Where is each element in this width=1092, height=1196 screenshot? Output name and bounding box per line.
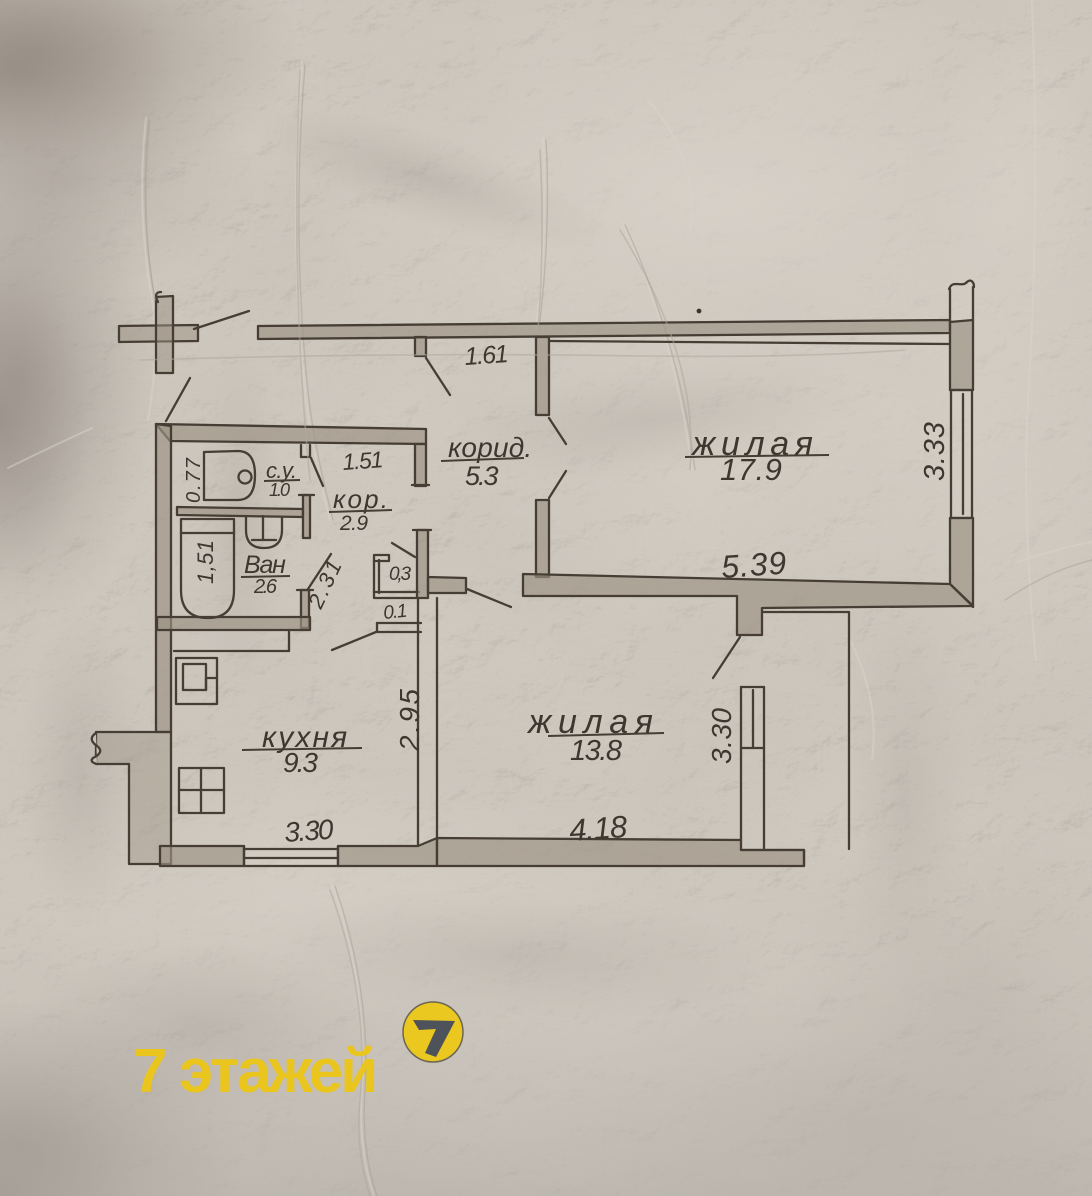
svg-text:1.0: 1.0 [269, 480, 290, 500]
svg-text:5.39: 5.39 [720, 544, 788, 585]
svg-text:Ван: Ван [244, 551, 286, 579]
svg-text:17.9: 17.9 [720, 452, 782, 487]
svg-text:0.77: 0.77 [183, 456, 205, 503]
svg-text:1.51: 1.51 [342, 446, 383, 475]
svg-text:1,51: 1,51 [193, 540, 218, 584]
svg-text:4.18: 4.18 [568, 809, 629, 848]
svg-text:2.9: 2.9 [339, 512, 368, 535]
svg-text:0.1: 0.1 [382, 601, 407, 624]
svg-text:3.33: 3.33 [919, 421, 951, 481]
svg-text:9.3: 9.3 [283, 747, 318, 778]
svg-text:5.3: 5.3 [465, 461, 499, 491]
svg-text:1.61: 1.61 [463, 340, 508, 371]
svg-text:3.30: 3.30 [283, 814, 335, 848]
svg-text:0,3: 0,3 [389, 564, 411, 585]
svg-text:2.95: 2.95 [394, 687, 425, 753]
svg-text:3.30: 3.30 [706, 708, 737, 765]
svg-text:13.8: 13.8 [570, 735, 622, 767]
svg-text:2.6: 2.6 [253, 576, 278, 598]
svg-text:7 этажей: 7 этажей [133, 1037, 376, 1106]
